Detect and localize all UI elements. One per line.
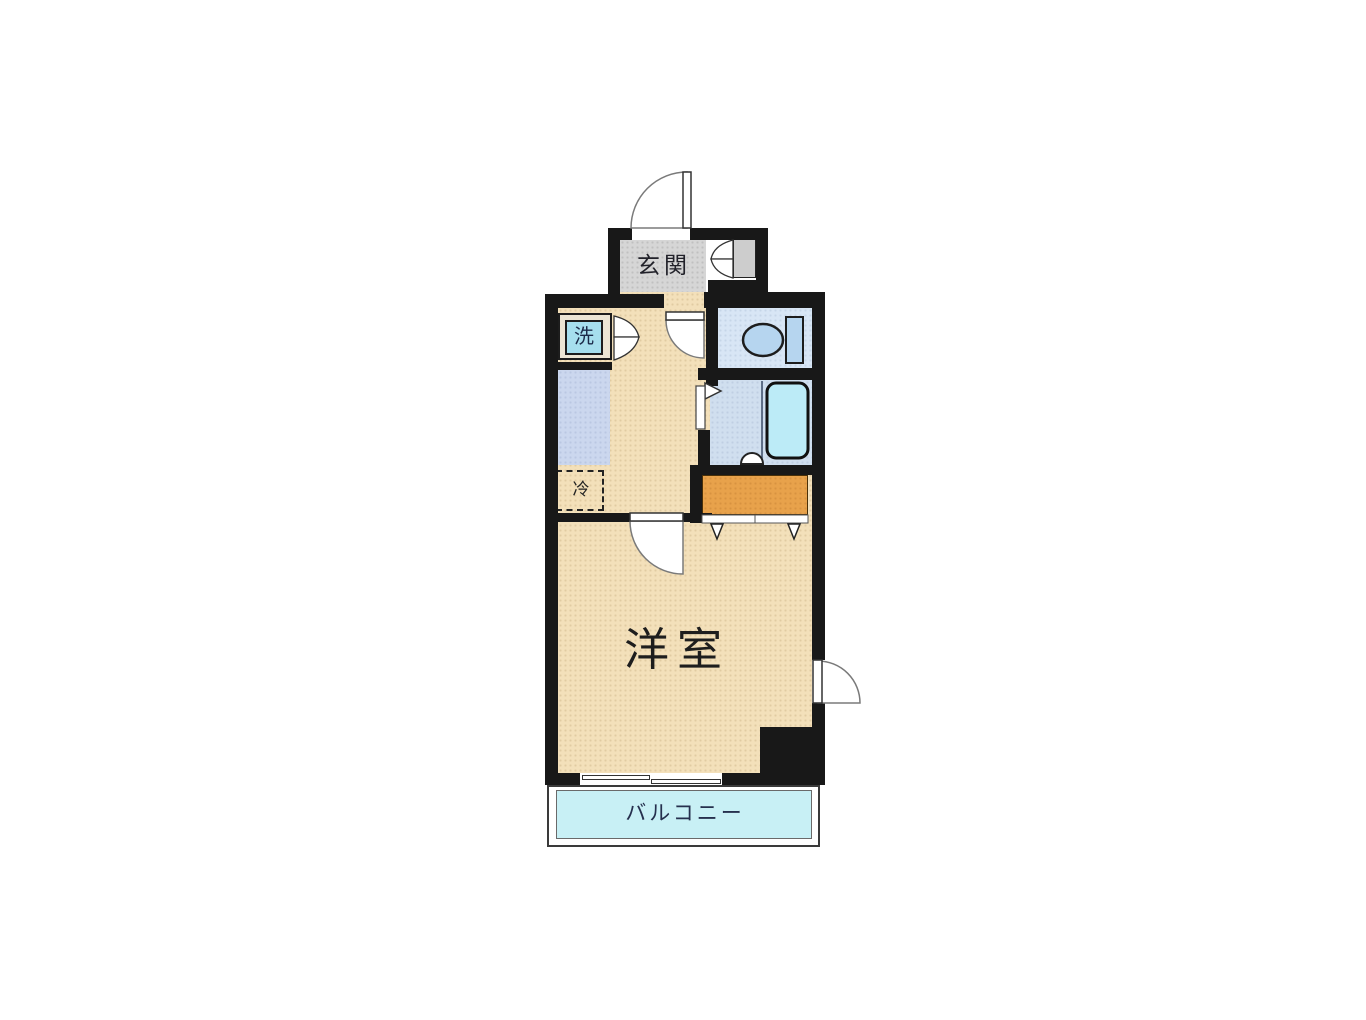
washer-label: 洗 — [566, 326, 602, 348]
hall-door-swing — [666, 320, 704, 358]
hall-door-leaf — [666, 312, 704, 320]
toilet-bowl — [743, 324, 783, 356]
refrigerator-label: 冷 — [560, 481, 602, 500]
toilet-tank — [786, 317, 803, 363]
floorplan: 玄関 洗 冷 洋室 バルコニー — [0, 0, 1366, 1020]
balcony-door-swing — [818, 661, 860, 703]
shoe-cabinet-door-top — [711, 240, 733, 259]
room-door-swing — [630, 521, 683, 574]
fixtures-layer — [0, 0, 1366, 1020]
washer-door-top — [614, 316, 639, 337]
washer-door-bottom — [614, 337, 639, 360]
bathtub — [767, 383, 808, 458]
room-door-leaf — [630, 513, 683, 521]
shoe-cabinet-door-bottom — [711, 259, 733, 278]
entrance-door-swing — [631, 172, 687, 228]
bath-door-leaf — [696, 386, 705, 429]
closet-door-arrow-right — [788, 524, 800, 539]
balcony-label: バルコニー — [585, 802, 785, 825]
bath-door-arrow — [705, 383, 721, 399]
western-room-label: 洋室 — [597, 626, 757, 676]
closet-door-arrow-left — [711, 524, 723, 539]
bath-drain — [741, 453, 763, 464]
entrance-label: 玄関 — [622, 253, 706, 278]
balcony-door-leaf — [813, 660, 822, 703]
entrance-door-leaf — [683, 172, 691, 228]
